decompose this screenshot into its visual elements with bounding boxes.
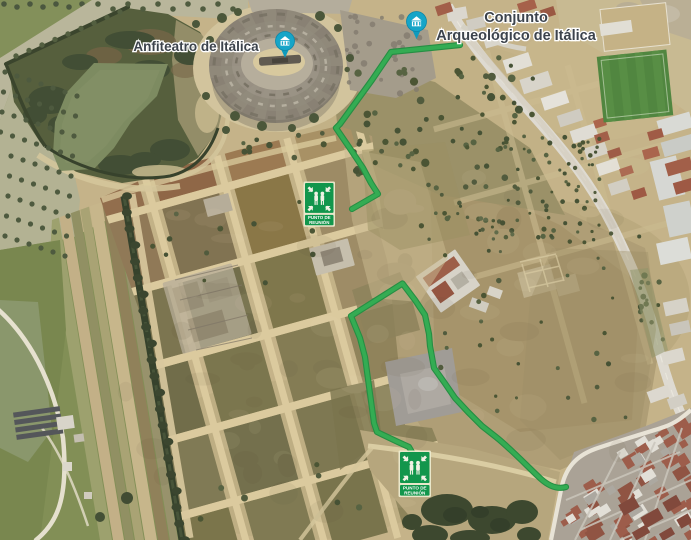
svg-text:Arqueológico de Itálica: Arqueológico de Itálica <box>436 28 596 44</box>
svg-text:Conjunto: Conjunto <box>484 10 548 26</box>
svg-text:Anfiteatro de Itálica: Anfiteatro de Itálica <box>133 39 259 54</box>
